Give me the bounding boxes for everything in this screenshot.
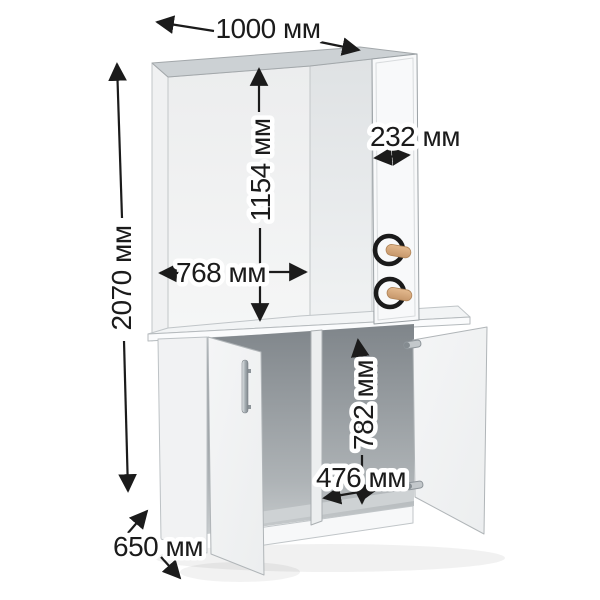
dimension-label-niche-height: 1154 мм: [245, 119, 276, 222]
dimension-label-lower-inner-width: 476 мм: [316, 462, 406, 493]
niche-right-wall: [310, 59, 372, 325]
lower-cabinet: [155, 324, 505, 582]
right-door-open: [413, 327, 487, 534]
dimension-label-depth: 650 мм: [113, 531, 203, 562]
dimension-label-niche-width: 768 мм: [176, 257, 266, 288]
left-side-panel-lower: [158, 337, 207, 553]
arrow-overall-height-bottom: [124, 341, 128, 491]
left-side-panel-upper: [152, 63, 168, 341]
left-door-open: [208, 337, 264, 575]
arrow-depth-top: [128, 511, 147, 533]
furniture-dimension-diagram: 1000 мм 2070 мм 1154 мм 768 мм 232 мм 78…: [0, 0, 600, 600]
hook-panel-column: [372, 54, 419, 324]
dimension-label-lower-inner-height: 782 мм: [348, 360, 379, 450]
dimension-label-hook-panel-width: 232 мм: [370, 121, 460, 152]
center-divider: [311, 330, 322, 525]
arrow-overall-height-top: [117, 64, 122, 218]
niche-back-panel: [168, 66, 310, 331]
dimension-label-overall-width: 1000 мм: [215, 13, 320, 44]
dimension-label-overall-height: 2070 мм: [106, 225, 137, 330]
arrow-overall-width-left: [157, 22, 214, 31]
